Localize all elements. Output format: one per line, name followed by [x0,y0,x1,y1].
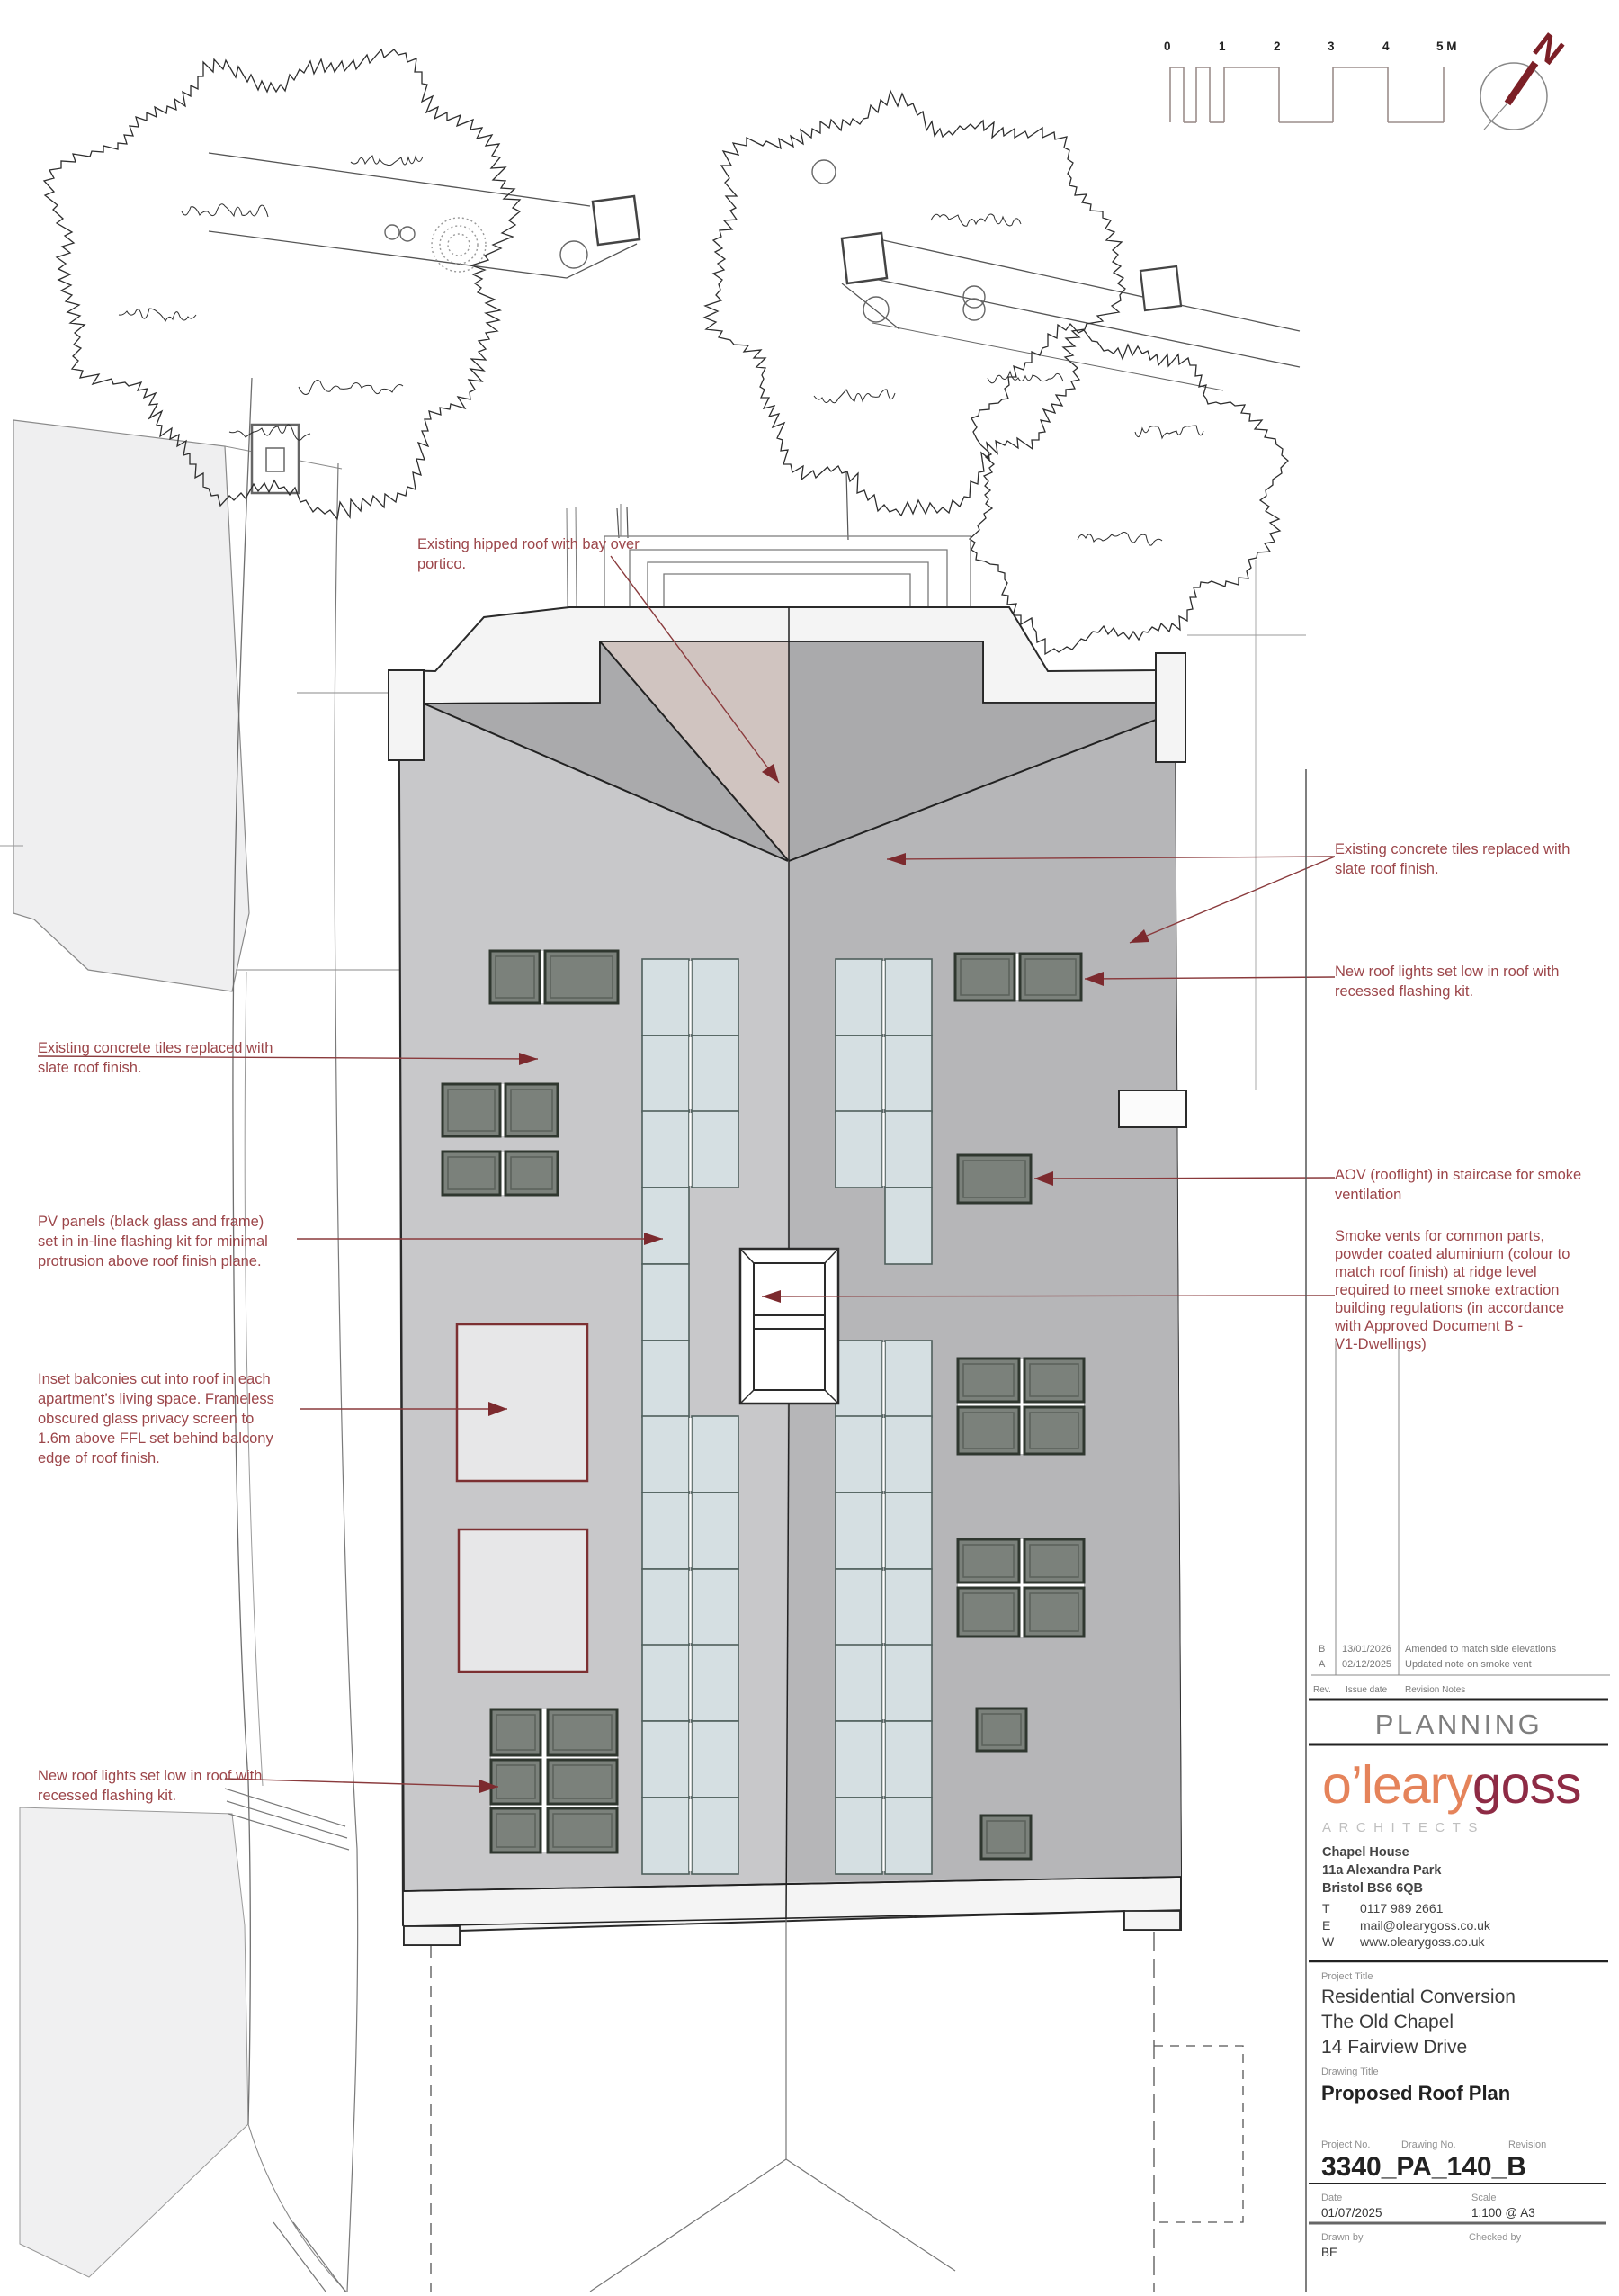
svg-text:Drawing Title: Drawing Title [1321,2067,1379,2077]
svg-text:0: 0 [1164,40,1171,53]
svg-text:11a Alexandra Park: 11a Alexandra Park [1322,1863,1442,1878]
svg-text:slate roof finish.: slate roof finish. [1335,861,1439,877]
svg-text:apartment’s living space. Fram: apartment’s living space. Frameless [38,1391,274,1407]
svg-text:New roof lights set low in roo: New roof lights set low in roof with [1335,964,1559,980]
svg-text:4: 4 [1382,40,1390,53]
svg-text:1: 1 [1219,40,1226,53]
svg-text:B: B [1319,1644,1325,1655]
svg-text:Project Title: Project Title [1321,1971,1373,1982]
svg-text:slate roof finish.: slate roof finish. [38,1060,142,1076]
svg-text:o’learygoss: o’learygoss [1322,1755,1580,1815]
svg-text:1.6m above FFL set behind balc: 1.6m above FFL set behind balcony [38,1431,273,1447]
svg-text:3: 3 [1328,40,1335,53]
svg-text:Revision Notes: Revision Notes [1405,1685,1465,1695]
svg-text:2: 2 [1274,40,1281,53]
svg-text:Bristol BS6 6QB: Bristol BS6 6QB [1322,1881,1423,1896]
svg-text:Date: Date [1321,2193,1342,2203]
svg-text:Drawing No.: Drawing No. [1401,2139,1456,2150]
svg-text:Scale: Scale [1471,2193,1497,2203]
svg-text:Checked by: Checked by [1469,2232,1522,2243]
svg-text:Rev.: Rev. [1313,1685,1331,1695]
svg-text:Chapel House: Chapel House [1322,1845,1409,1860]
svg-text:A: A [1319,1659,1326,1670]
svg-text:mail@olearygoss.co.uk: mail@olearygoss.co.uk [1360,1918,1491,1933]
svg-text:01/07/2025: 01/07/2025 [1321,2206,1382,2220]
svg-text:0117 989 2661: 0117 989 2661 [1360,1901,1444,1915]
svg-text:set in in-line flashing kit fo: set in in-line flashing kit for minimal [38,1233,268,1250]
svg-text:Amended to match side elevatio: Amended to match side elevations [1405,1644,1557,1655]
svg-text:BE: BE [1321,2246,1337,2259]
svg-text:required to meet smoke extract: required to meet smoke extraction [1335,1282,1559,1298]
svg-text:14 Fairview Drive: 14 Fairview Drive [1321,2037,1467,2058]
svg-text:recessed flashing kit.: recessed flashing kit. [38,1788,176,1804]
svg-text:Updated note on smoke vent: Updated note on smoke vent [1405,1659,1532,1670]
svg-text:T: T [1322,1901,1330,1915]
svg-text:Issue date: Issue date [1346,1685,1388,1695]
svg-text:3340_PA_140_B: 3340_PA_140_B [1321,2152,1526,2182]
svg-text:portico.: portico. [417,556,466,572]
svg-text:obscured glass privacy screen: obscured glass privacy screen to [38,1411,254,1427]
svg-text:www.olearygoss.co.uk: www.olearygoss.co.uk [1359,1934,1486,1949]
svg-text:5 M: 5 M [1436,40,1457,53]
svg-text:with Approved Document B -: with Approved Document B - [1334,1318,1523,1334]
svg-text:Existing concrete tiles replac: Existing concrete tiles replaced with [1335,841,1570,857]
svg-text:1:100 @ A3: 1:100 @ A3 [1471,2206,1535,2220]
svg-text:The Old Chapel: The Old Chapel [1321,2012,1454,2032]
svg-text:Residential Conversion: Residential Conversion [1321,1987,1516,2007]
svg-text:match roof finish) at ridge le: match roof finish) at ridge level [1335,1264,1537,1280]
svg-text:ventilation: ventilation [1335,1187,1401,1203]
svg-text:Revision: Revision [1508,2139,1546,2150]
svg-text:V1-Dwellings): V1-Dwellings) [1335,1336,1427,1352]
svg-text:ARCHITECTS: ARCHITECTS [1322,1820,1485,1835]
svg-text:W: W [1322,1934,1335,1949]
svg-text:PLANNING: PLANNING [1375,1709,1543,1740]
svg-text:recessed flashing kit.: recessed flashing kit. [1335,983,1473,1000]
svg-text:13/01/2026: 13/01/2026 [1342,1644,1391,1655]
svg-text:protrusion above roof finish p: protrusion above roof finish plane. [38,1253,262,1269]
svg-text:Existing hipped roof with bay: Existing hipped roof with bay over [417,536,640,552]
svg-text:E: E [1322,1918,1330,1933]
svg-text:Existing concrete tiles replac: Existing concrete tiles replaced with [38,1040,273,1056]
svg-text:Drawn by: Drawn by [1321,2232,1364,2243]
svg-text:building regulations (in accor: building regulations (in accordance [1335,1300,1564,1316]
svg-text:powder coated aluminium (colou: powder coated aluminium (colour to [1335,1246,1570,1262]
svg-text:Proposed Roof Plan: Proposed Roof Plan [1321,2082,1510,2104]
svg-text:02/12/2025: 02/12/2025 [1342,1659,1391,1670]
svg-text:PV panels (black glass and fra: PV panels (black glass and frame) [38,1214,264,1230]
svg-text:Project No.: Project No. [1321,2139,1370,2150]
svg-text:AOV (rooflight) in staircase f: AOV (rooflight) in staircase for smoke [1335,1167,1581,1183]
svg-text:New roof lights set low in roo: New roof lights set low in roof with [38,1768,262,1784]
svg-text:Inset balconies cut into roof: Inset balconies cut into roof in each [38,1371,271,1387]
svg-text:Smoke vents for common parts,: Smoke vents for common parts, [1335,1228,1544,1244]
svg-text:edge of roof finish.: edge of roof finish. [38,1450,160,1466]
